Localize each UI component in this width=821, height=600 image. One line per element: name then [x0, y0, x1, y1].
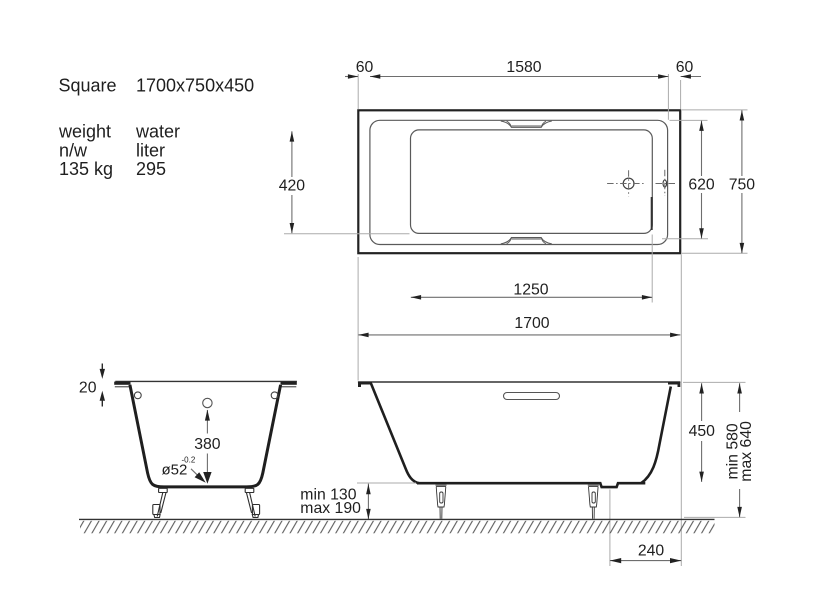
svg-text:240: 240 [638, 543, 665, 560]
svg-text:1250: 1250 [513, 281, 548, 298]
svg-text:1700x750x450: 1700x750x450 [136, 76, 254, 96]
svg-text:-0.2: -0.2 [182, 456, 196, 465]
svg-text:620: 620 [688, 177, 715, 194]
svg-text:60: 60 [356, 59, 374, 76]
svg-text:20: 20 [79, 380, 97, 397]
svg-text:295: 295 [136, 159, 166, 179]
svg-text:liter: liter [136, 140, 165, 160]
svg-text:weight: weight [58, 122, 111, 142]
svg-text:Square: Square [59, 76, 117, 96]
svg-text:max 190: max 190 [300, 500, 361, 517]
svg-text:60: 60 [676, 59, 694, 76]
svg-text:max 640: max 640 [738, 421, 755, 482]
svg-text:n/w: n/w [59, 140, 88, 160]
svg-text:380: 380 [194, 436, 221, 453]
svg-text:135 kg: 135 kg [59, 159, 113, 179]
svg-text:1700: 1700 [514, 315, 549, 332]
svg-text:750: 750 [729, 177, 756, 194]
svg-text:450: 450 [689, 423, 716, 440]
svg-text:water: water [135, 122, 180, 142]
svg-text:1580: 1580 [506, 59, 541, 76]
svg-text:420: 420 [279, 178, 306, 195]
